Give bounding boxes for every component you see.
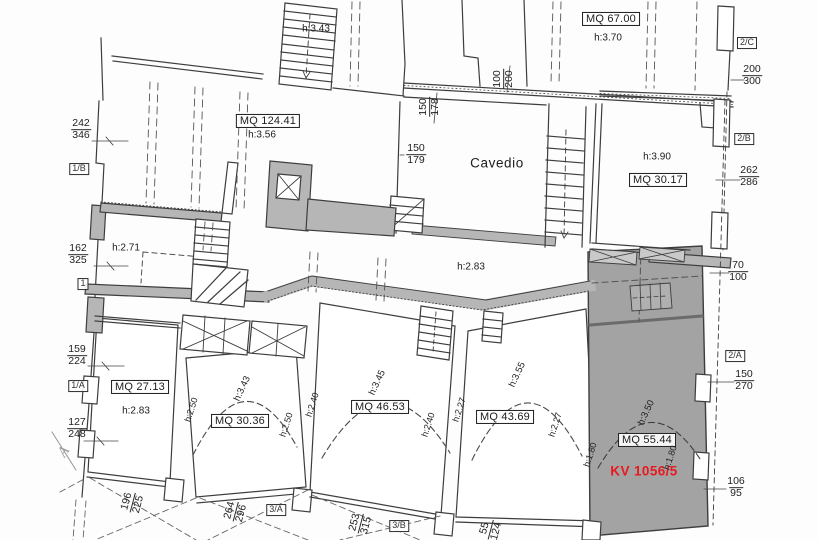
- corridor-height: h:2.83: [457, 262, 485, 273]
- room-area-label-mq5544: MQ 55.44: [618, 433, 676, 447]
- room-area-label-mq4369: MQ 43.69: [476, 410, 534, 424]
- dim-70-100: 70100: [728, 260, 748, 284]
- tag-3b: 3/B: [389, 520, 409, 532]
- room-height-mq2713: h:2.83: [122, 406, 150, 417]
- room-area-label-mq4653: MQ 46.53: [351, 400, 409, 414]
- floor-plan-page: MQ 124.41 h:3.56 h:3.43 MQ 67.00 h:3.70 …: [0, 0, 818, 540]
- tag-1a: 1/A: [68, 380, 88, 392]
- floor-plan-drawing: [0, 0, 818, 540]
- dim-127-248: 127248: [67, 417, 87, 441]
- room-area-label-mq124: MQ 124.41: [236, 114, 300, 128]
- tag-1b: 1/B: [69, 163, 89, 175]
- dim-106-95: 10695: [727, 476, 745, 500]
- room-area-label-mq67: MQ 67.00: [582, 12, 640, 26]
- room-height-top: h:3.43: [302, 24, 330, 35]
- room-area-label-mq3036: MQ 30.36: [211, 414, 269, 428]
- room-area-label-mq2713: MQ 27.13: [111, 380, 169, 394]
- dim-200-300: 200300: [742, 64, 762, 88]
- room-height-mq3017: h:3.90: [643, 152, 671, 163]
- room-height-mq124: h:3.56: [248, 130, 276, 141]
- tag-2c: 2/C: [737, 37, 757, 49]
- room-name-cavedio: Cavedio: [470, 157, 524, 172]
- room-height-mq67: h:3.70: [594, 33, 622, 44]
- room-mq2713-outline: [88, 318, 178, 482]
- tag-2a: 2/A: [725, 350, 745, 362]
- dim-242-346: 242346: [71, 118, 91, 142]
- dim-150-178: 150178: [418, 97, 442, 117]
- room-height-h271: h:2.71: [112, 243, 140, 254]
- dim-100-200: 100200: [492, 69, 516, 89]
- dim-262-286: 262286: [739, 165, 759, 189]
- tag-3a: 3/A: [266, 504, 286, 516]
- tag-2b: 2/B: [734, 133, 754, 145]
- room-area-label-mq3017: MQ 30.17: [629, 173, 687, 187]
- dim-162-325: 162325: [68, 243, 88, 267]
- dim-150-179: 150179: [406, 143, 426, 167]
- tag-1: 1: [77, 278, 88, 290]
- dim-150-270: 150270: [734, 369, 754, 393]
- dim-159-224: 159224: [67, 344, 87, 368]
